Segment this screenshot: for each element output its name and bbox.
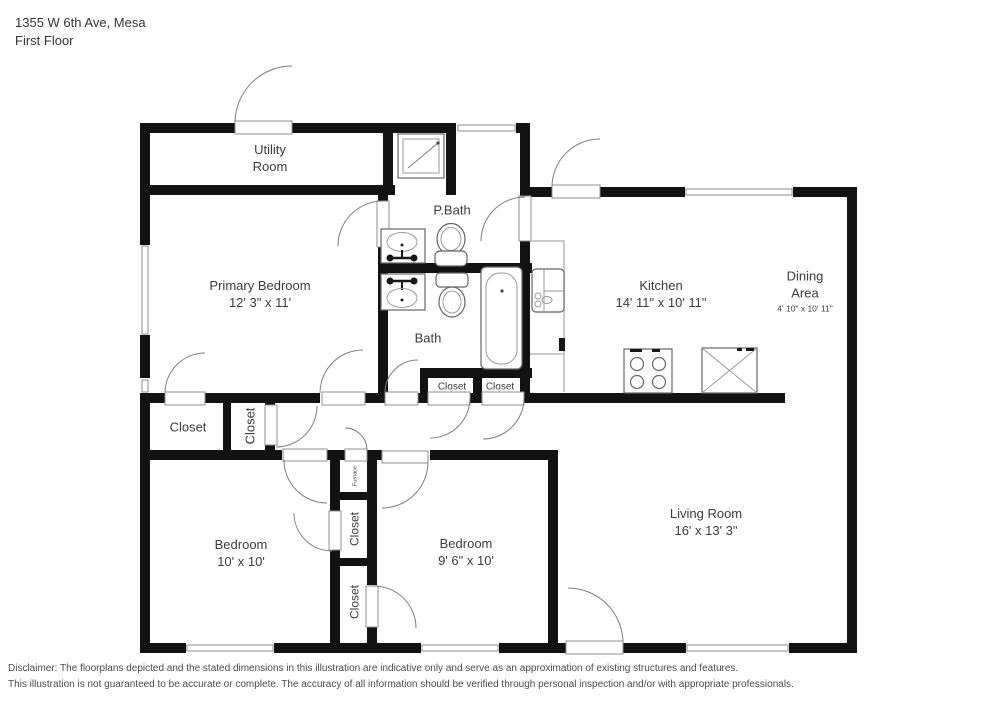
- door-icon: [265, 405, 317, 447]
- window-icon: [686, 189, 792, 195]
- window-icon: [458, 125, 515, 131]
- room-label-bedroom1: Bedroom 10' x 10': [215, 536, 268, 570]
- door-icon: [382, 451, 428, 508]
- door-icon: [294, 511, 341, 551]
- floorplan-drawing: [0, 0, 1000, 707]
- door-icon: [345, 428, 367, 461]
- room-label-bedroom2: Bedroom 9' 6" x 10': [438, 535, 494, 569]
- floorplan-page: 1355 W 6th Ave, Mesa First Floor: [0, 0, 1000, 707]
- room-dims: 12' 3" x 11': [209, 294, 310, 311]
- room-dims: 4' 10" x 10' 11": [777, 304, 832, 315]
- room-label-closet-hall-vertical: Closet: [242, 408, 259, 445]
- room-label-dining: Dining Area 4' 10" x 10' 11": [777, 268, 832, 315]
- door-icon: [283, 449, 327, 503]
- door-icon: [428, 392, 470, 438]
- window-icon: [142, 380, 148, 392]
- disclaimer: Disclaimer: The floorplans depicted and …: [8, 661, 794, 693]
- kitchen-counter: [530, 241, 565, 392]
- disclaimer-line1: Disclaimer: The floorplans depicted and …: [8, 661, 794, 677]
- door-icon: [566, 588, 623, 654]
- room-dims: 10' x 10': [215, 553, 268, 570]
- disclaimer-line2: This illustration is not guaranteed to b…: [8, 677, 794, 693]
- toilet-icon: [435, 224, 467, 267]
- room-label-furnace: Furnace: [348, 466, 365, 486]
- door-icon: [552, 139, 600, 198]
- room-label-living: Living Room 16' x 13' 3": [670, 505, 742, 539]
- room-label-closet-bath-left: Closet: [438, 379, 466, 396]
- room-label-closet-middle: Closet: [347, 512, 364, 546]
- room-label-pbath: P.Bath: [433, 202, 470, 219]
- window-icon: [687, 645, 788, 651]
- toilet-icon: [436, 273, 468, 317]
- door-icon: [481, 196, 531, 241]
- cabinet-x-icon: [702, 348, 757, 393]
- room-label-closet-bottom: Closet: [347, 585, 364, 619]
- vanity-sink-icon: [381, 229, 425, 263]
- door-icon: [385, 360, 418, 405]
- window-icon: [422, 645, 498, 651]
- door-icon: [320, 350, 365, 405]
- window-icon: [187, 645, 273, 651]
- bathtub-icon: [481, 267, 522, 369]
- room-label-closet-hall: Closet: [170, 419, 207, 436]
- room-label-closet-bath-right: Closet: [486, 379, 514, 396]
- door-icon: [482, 392, 524, 439]
- room-dims: 16' x 13' 3": [670, 522, 742, 539]
- shower-icon: [398, 134, 444, 178]
- vanity-sink-icon: [381, 274, 425, 310]
- kitchen-sink-icon: [532, 269, 564, 312]
- room-label-kitchen: Kitchen 14' 11" x 10' 11": [615, 277, 706, 311]
- room-label-utility: Utility Room: [253, 141, 288, 175]
- room-dims: 9' 6" x 10': [438, 552, 494, 569]
- room-label-bath: Bath: [415, 330, 442, 347]
- door-icon: [165, 353, 205, 405]
- room-label-primary-bedroom: Primary Bedroom 12' 3" x 11': [209, 277, 310, 311]
- stove-icon: [624, 349, 672, 393]
- window-icon: [142, 246, 148, 334]
- room-dims: 14' 11" x 10' 11": [615, 294, 706, 311]
- door-icon: [235, 66, 292, 134]
- door-icon: [366, 586, 416, 628]
